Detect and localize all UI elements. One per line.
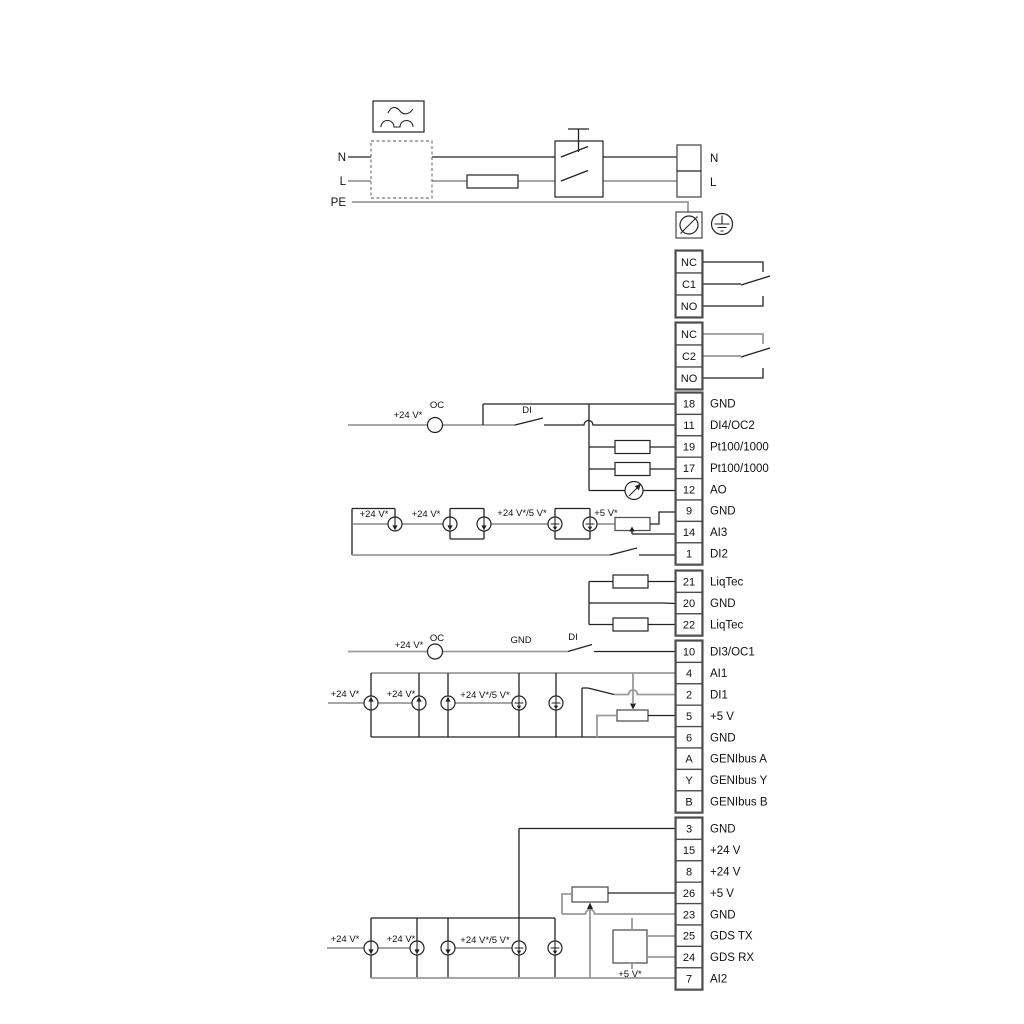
- relay1-wiring: [702, 262, 770, 306]
- pe-label: PE: [331, 197, 347, 209]
- terminal-label: GND: [710, 732, 736, 744]
- di-label: DI: [568, 632, 578, 643]
- terminal-number: 26: [683, 888, 695, 900]
- terminal-number: 22: [683, 620, 695, 632]
- relay1-wires: [702, 262, 763, 306]
- terminal-label: GND: [710, 598, 736, 610]
- wiring-diagram-page: N L PE N L: [0, 0, 1024, 1024]
- current-source-icon: [412, 696, 426, 710]
- terminal-number: 10: [683, 647, 695, 659]
- pe-wire: [352, 202, 688, 212]
- relay-terminal-label: NC: [681, 329, 697, 341]
- v24-label: +24 V*: [412, 509, 441, 520]
- v24-label: +24 V*: [387, 689, 416, 700]
- relay2-no-wire: [702, 368, 763, 378]
- pe-screw-terminal: [676, 212, 702, 238]
- terminal-group-b: 21LiqTec20GND22LiqTec: [675, 570, 743, 636]
- gds-module: [613, 930, 647, 963]
- v24-label: +24 V*: [360, 509, 389, 520]
- terminal-label: Pt100/1000: [710, 442, 769, 454]
- current-source-icon: [443, 517, 457, 531]
- open-collector-icon: [428, 644, 443, 659]
- di1-support-wire: [582, 688, 588, 737]
- ai3-wire: [632, 532, 676, 535]
- terminal-number: 19: [683, 442, 695, 454]
- terminal-label: GND: [710, 399, 736, 411]
- terminal-group-c: 10DI3/OC14AI12DI15+5 V6GNDAGENIbus AYGEN…: [675, 640, 768, 813]
- terminal-label: GND: [710, 824, 736, 836]
- io-section-c: +24 V* OC GND DI +24 V* +24 V* +24 V*/5 …: [328, 632, 676, 737]
- terminal-number: 11: [683, 420, 694, 432]
- neutral-label: N: [338, 152, 346, 164]
- current-source-icon: [410, 941, 424, 955]
- terminal-number: 7: [686, 974, 692, 986]
- di2-switch-blade: [610, 548, 637, 555]
- fuse: [467, 175, 518, 188]
- earth-ground-icon: [712, 214, 733, 235]
- gnd18-wire: [483, 404, 676, 425]
- potentiometer: [617, 710, 648, 721]
- terminal-number: 8: [686, 867, 692, 879]
- terminal-number: 25: [683, 931, 695, 943]
- terminal-label: GDS TX: [710, 931, 753, 943]
- oc-label: OC: [430, 633, 444, 644]
- rcd-box: [371, 141, 432, 198]
- di4-switch-blade: [515, 418, 543, 425]
- terminal-number: 1: [686, 549, 692, 561]
- relay-block-2: NCC2NO: [675, 322, 703, 390]
- terminal-label: LiqTec: [710, 577, 743, 589]
- v24-5v-label: +24 V*/5 V*: [460, 690, 510, 701]
- terminal-strips: 18GND11DI4/OC219Pt100/100017Pt100/100012…: [675, 392, 769, 990]
- relay2-contact-blade: [741, 348, 770, 357]
- terminal-label: GND: [710, 909, 736, 921]
- mains-n-label: N: [710, 153, 718, 165]
- gnd9-wire: [650, 512, 676, 524]
- oc-label: OC: [430, 400, 444, 411]
- v5-label: +5 V*: [618, 969, 642, 980]
- terminal-number: 9: [686, 506, 692, 518]
- liqtec-section: [589, 575, 676, 631]
- di4-wire: [544, 421, 676, 426]
- terminal-number: A: [685, 754, 693, 766]
- terminal-number: 14: [683, 527, 695, 539]
- terminal-label: GDS RX: [710, 952, 754, 964]
- pot-left-wire: [562, 894, 572, 914]
- terminal-label: +5 V: [710, 888, 734, 900]
- v24-label: +24 V*: [331, 934, 360, 945]
- terminal-number: 5: [686, 711, 692, 723]
- line-label: L: [340, 176, 347, 188]
- relay-terminal-label: NO: [681, 373, 698, 385]
- relay-terminal-label: C2: [682, 351, 696, 363]
- current-source-icon: [512, 941, 526, 955]
- terminal-number: 6: [686, 732, 692, 744]
- source2-brackets: [371, 673, 556, 737]
- relay-terminal-label: NC: [681, 257, 697, 269]
- v24-5v-label: +24 V*/5 V*: [497, 508, 547, 519]
- liqtec-resistor-2: [613, 618, 648, 631]
- terminal-label: DI3/OC1: [710, 647, 755, 659]
- terminal-label: +5 V: [710, 711, 734, 723]
- liqtec-resistor-1: [613, 575, 648, 588]
- relay-block-1: NCC1NO: [675, 250, 703, 318]
- mains-terminal-block: N L: [677, 145, 718, 197]
- potentiometer: [572, 887, 608, 902]
- wiper-arrow-down: [630, 704, 636, 710]
- di3-switch-blade: [568, 645, 592, 652]
- terminal-label: DI1: [710, 690, 728, 702]
- v24-label: +24 V*: [394, 410, 423, 421]
- terminal-label: DI2: [710, 549, 728, 561]
- terminal-label: GENIbus Y: [710, 775, 768, 787]
- terminal-label: LiqTec: [710, 620, 743, 632]
- terminal-number: 24: [683, 952, 695, 964]
- current-source-icon: [441, 941, 455, 955]
- terminal-number: 20: [683, 598, 695, 610]
- terminal-number: 15: [683, 845, 695, 857]
- open-collector-icon: [428, 418, 443, 433]
- mains-l-label: L: [710, 177, 717, 189]
- terminal-number: 2: [686, 690, 692, 702]
- terminal-label: AI1: [710, 668, 727, 680]
- current-source-icon: [441, 696, 455, 710]
- v24-5v-label: +24 V*/5 V*: [460, 935, 510, 946]
- source-circle: [428, 418, 443, 433]
- pt100-resistor-2: [615, 463, 650, 476]
- di-label: DI: [522, 405, 532, 416]
- terminal-number: 21: [683, 577, 695, 589]
- terminal-group-a: 18GND11DI4/OC219Pt100/100017Pt100/100012…: [675, 392, 769, 565]
- current-source-icon: [364, 696, 378, 710]
- terminal-label: AI2: [710, 974, 727, 986]
- relay-terminal-blocks: NCC1NONCC2NO: [675, 250, 703, 390]
- relay-terminal-label: NO: [681, 301, 698, 313]
- terminal-label: GENIbus A: [710, 754, 767, 766]
- terminal-number: 4: [686, 668, 692, 680]
- relay2-wiring: [702, 334, 770, 378]
- terminal-number: Y: [685, 775, 693, 787]
- current-source-icon: [549, 696, 563, 710]
- current-source-icon: [583, 517, 597, 531]
- current-source-symbols: [364, 418, 597, 956]
- terminal-label: +24 V: [710, 845, 741, 857]
- terminal-number: B: [685, 797, 692, 809]
- di1-wire: [614, 690, 676, 695]
- current-source-icon: [512, 696, 526, 710]
- terminal-label: AI3: [710, 527, 727, 539]
- power-supply-section: N L PE N L: [331, 101, 733, 238]
- di1-switch-blade: [588, 688, 614, 695]
- meter-icon: [625, 482, 643, 500]
- main-switch: [555, 129, 603, 197]
- terminal-number: 18: [683, 399, 695, 411]
- v24-label: +24 V*: [331, 689, 360, 700]
- current-source-icon: [477, 517, 491, 531]
- v24-label: +24 V*: [395, 640, 424, 651]
- wiper-arrow-up: [587, 903, 593, 910]
- terminal-number: 3: [686, 824, 692, 836]
- relay1-contact-blade: [741, 276, 770, 285]
- current-source-icon: [548, 941, 562, 955]
- source-circle: [428, 644, 443, 659]
- pot-gnd-wire: [597, 716, 617, 738]
- terminal-label: AO: [710, 484, 727, 496]
- gnd23-wire: [562, 910, 676, 915]
- terminal-number: 17: [683, 463, 695, 475]
- terminal-label: GND: [710, 506, 736, 518]
- terminal-label: Pt100/1000: [710, 463, 769, 475]
- current-source-icon: [388, 517, 402, 531]
- gnd-label: GND: [510, 635, 531, 646]
- gnd3-wire: [519, 829, 676, 942]
- current-source-icon: [364, 941, 378, 955]
- terminal-number: 12: [683, 484, 695, 496]
- terminal-group-d: 3GND15+24 V8+24 V26+5 V23GND25GDS TX24GD…: [675, 817, 754, 990]
- terminal-label: +24 V: [710, 867, 741, 879]
- wiring-diagram: N L PE N L: [0, 0, 1024, 1024]
- current-source-icon: [548, 517, 562, 531]
- terminal-number: 23: [683, 909, 695, 921]
- terminal-label: DI4/OC2: [710, 420, 755, 432]
- pt100-resistor-1: [615, 441, 650, 454]
- terminal-label: GENIbus B: [710, 797, 768, 809]
- io-section-d: +24 V* +24 V* +24 V*/5 V* +5 V*: [327, 829, 676, 981]
- relay-terminal-label: C1: [682, 279, 696, 291]
- io-section-a: +24 V* OC DI +24 V* +24 V* +24 V*/5 V* +…: [348, 400, 676, 555]
